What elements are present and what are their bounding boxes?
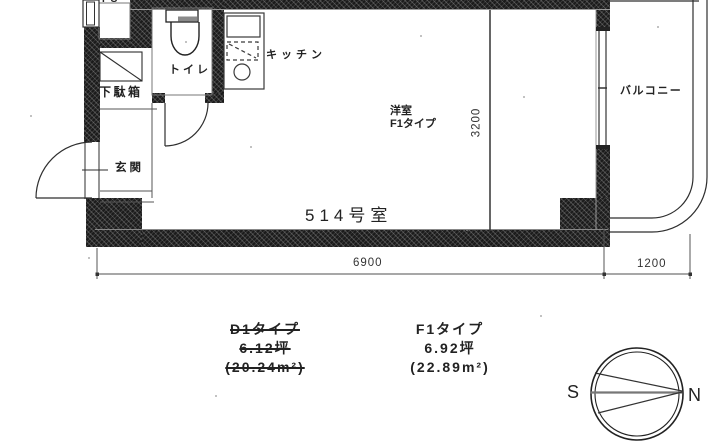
legend-old-area: (20.24m²) [203, 358, 327, 377]
legend-new-area: (22.89m²) [386, 358, 514, 377]
compass-north-label: N [688, 385, 701, 406]
balcony-railing [608, 0, 707, 232]
shoe-cabinet-label: 下駄箱 [99, 83, 143, 100]
entrance-label: 玄関 [115, 159, 144, 175]
legend-old-name: D1タイプ [203, 320, 327, 339]
toilet-label: トイレ [169, 61, 211, 77]
kitchen-unit-icon [224, 13, 264, 89]
western-room-name: 洋室 [390, 105, 436, 118]
balcony-label: バルコニー [620, 82, 682, 98]
right-window-icon [596, 27, 610, 149]
legend-new-type-block: F1タイプ 6.92坪 (22.89m²) [386, 320, 514, 377]
shoe-cabinet-icon [100, 52, 142, 81]
dim-balcony-1200: 1200 [637, 258, 667, 270]
ps-label: PS [102, 0, 119, 5]
entrance-floor-lines [100, 103, 157, 202]
dim-depth-3200: 3200 [471, 101, 484, 145]
room-number-label: 514号室 [305, 201, 392, 226]
kitchen-label: キッチン [266, 46, 326, 62]
floor-plan-scan: PS トイレ キッチン 下駄箱 玄関 洋室 F1タイプ バルコニー 514号室 … [0, 0, 726, 441]
legend-old-tsubo: 6.12坪 [203, 339, 327, 358]
western-room-type: F1タイプ [390, 118, 436, 131]
dim-width-6900: 6900 [353, 257, 383, 269]
compass-south-label: S [567, 382, 579, 403]
left-window-icon [83, 0, 99, 27]
legend-new-name: F1タイプ [386, 320, 514, 339]
dimension-lines [96, 229, 693, 279]
compass-icon [590, 348, 683, 440]
toilet-fixture-icon [166, 10, 199, 55]
western-room-label: 洋室 F1タイプ [390, 105, 436, 130]
legend-old-type-block: D1タイプ 6.12坪 (20.24m²) [203, 320, 327, 377]
ps-closet [99, 3, 130, 39]
toilet-door-icon [165, 103, 208, 146]
entrance-door-icon [36, 142, 108, 199]
legend-new-tsubo: 6.92坪 [386, 339, 514, 358]
